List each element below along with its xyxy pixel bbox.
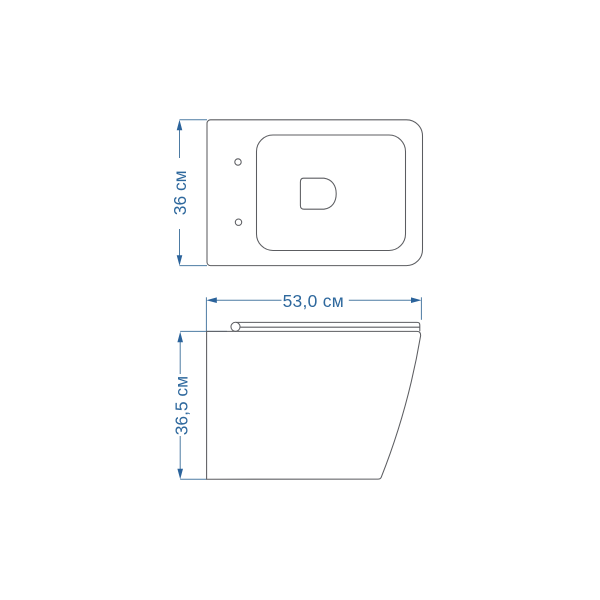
svg-text:36,5 см: 36,5 см <box>172 376 192 435</box>
svg-text:36 см: 36 см <box>170 170 190 215</box>
svg-text:53,0 см: 53,0 см <box>283 291 344 311</box>
